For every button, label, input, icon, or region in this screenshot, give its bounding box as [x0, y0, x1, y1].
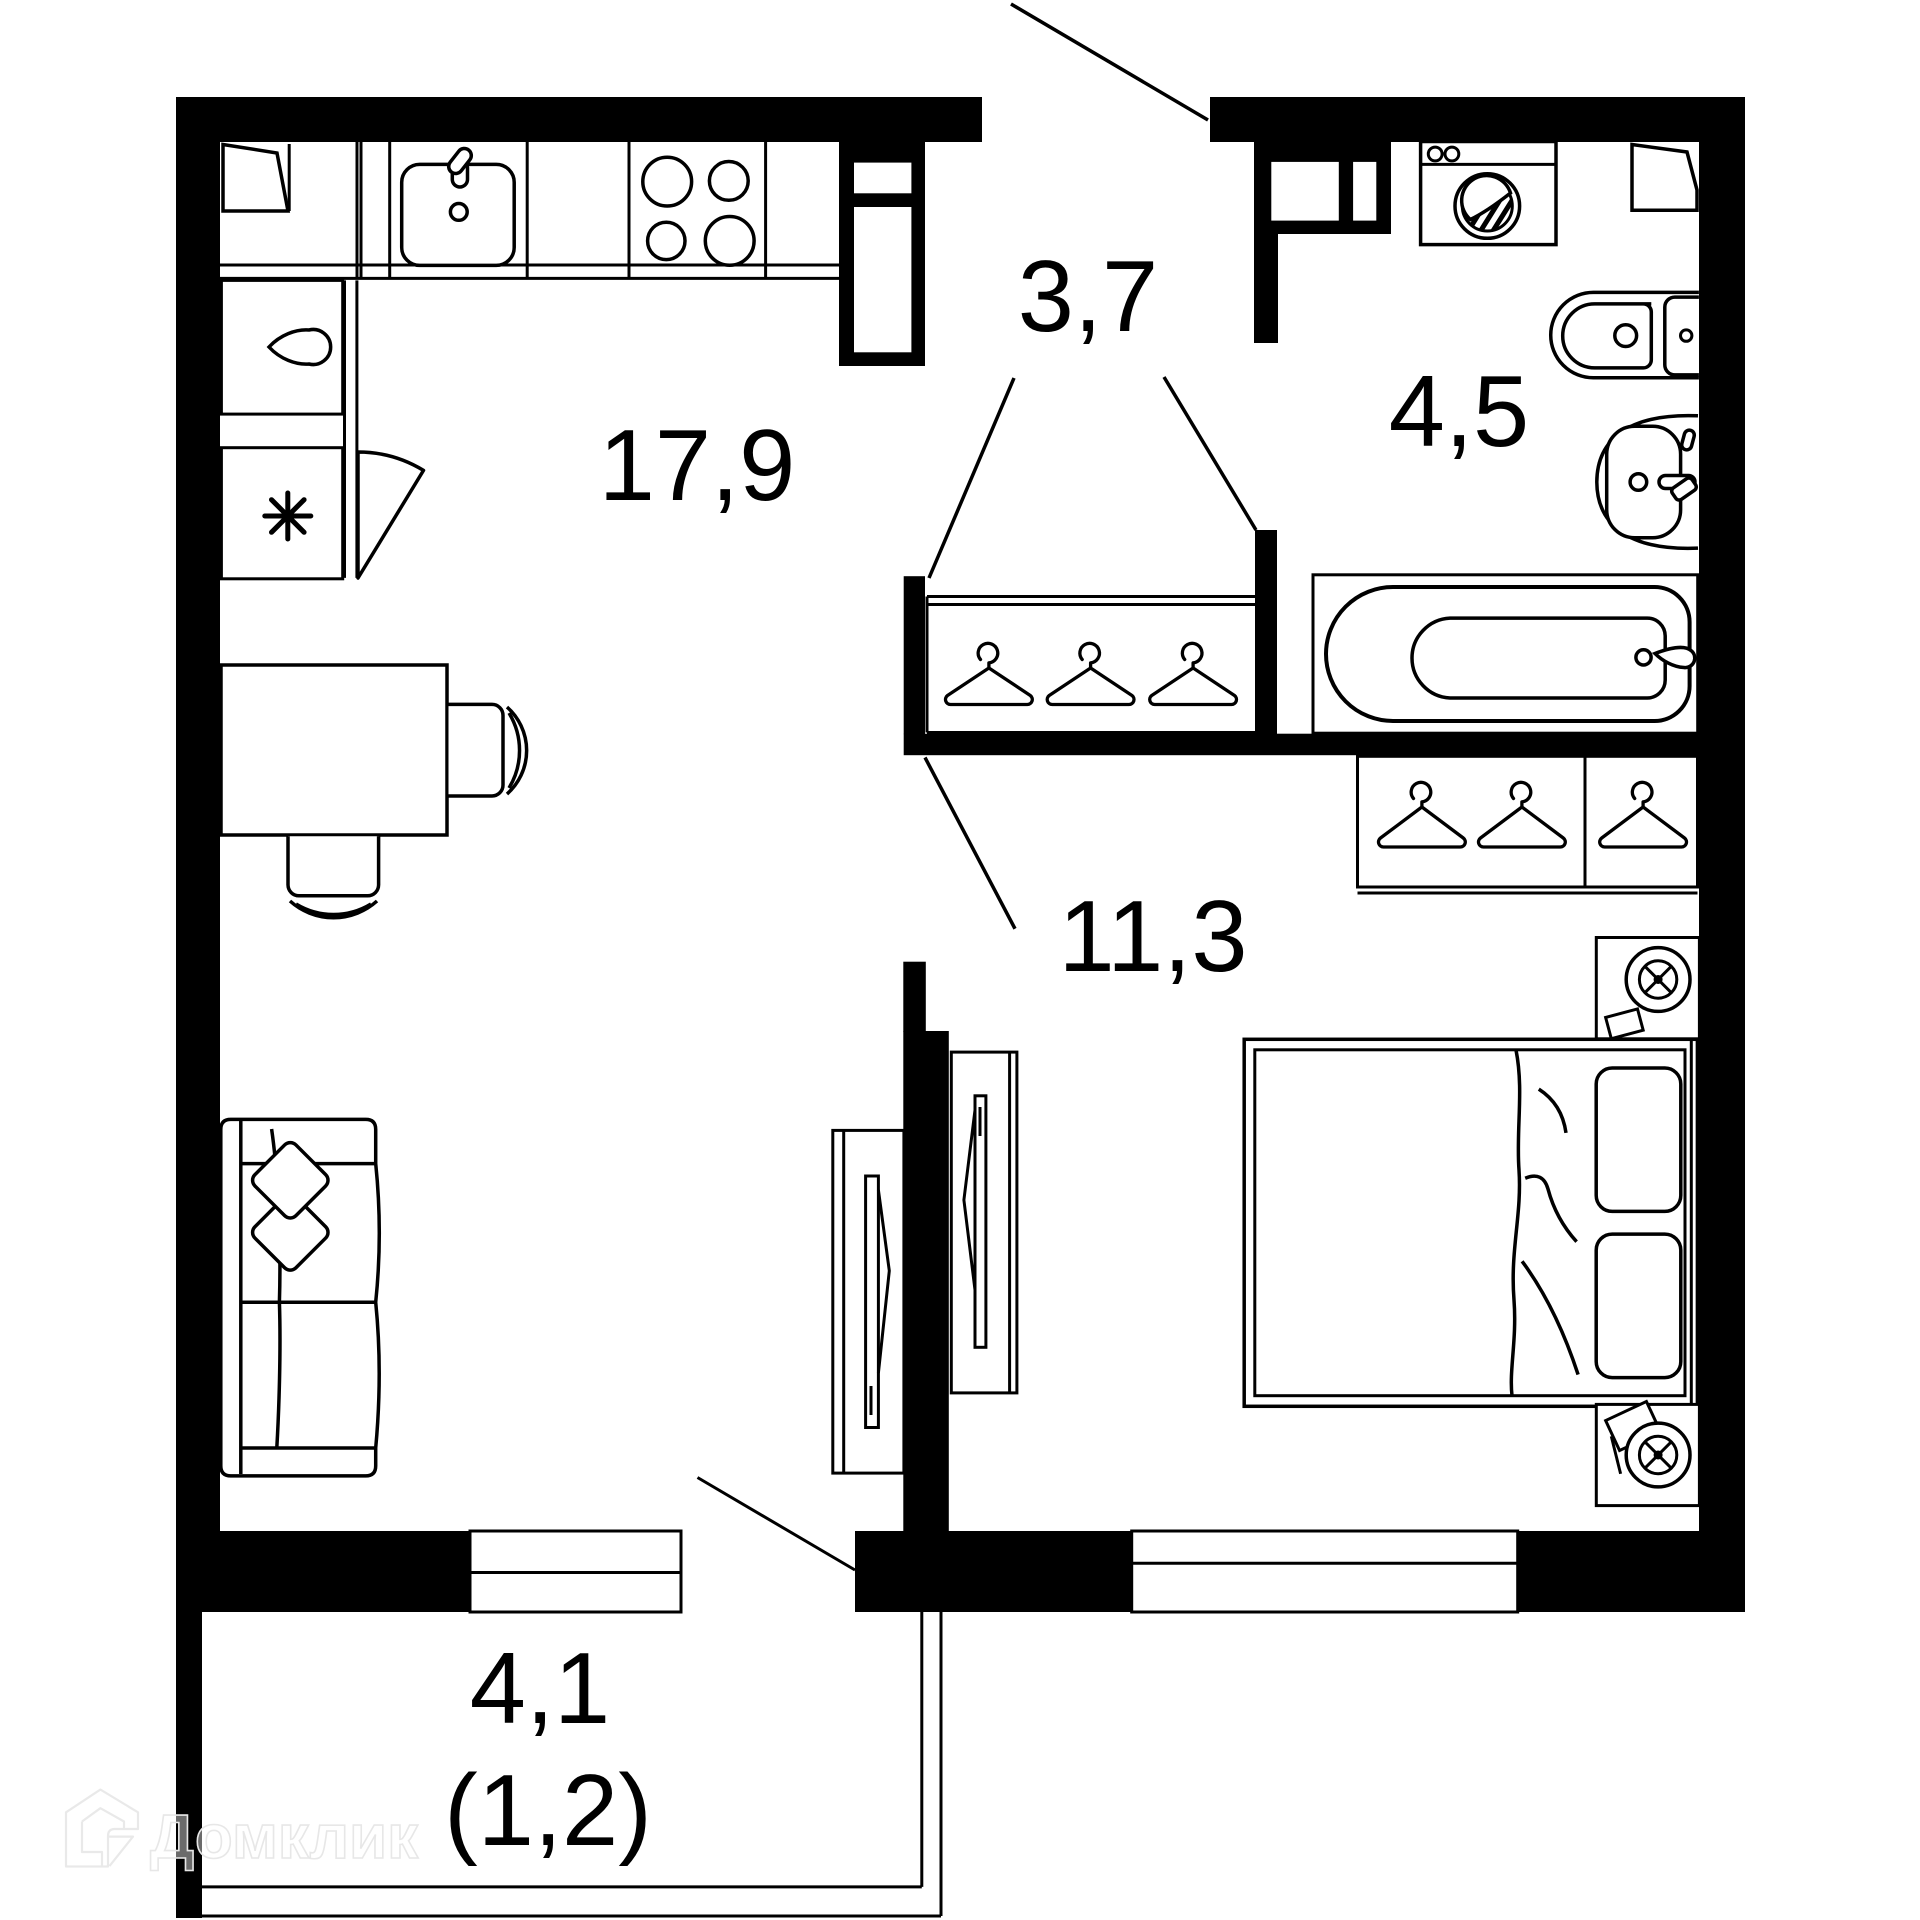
svg-text:3,7: 3,7 — [1018, 241, 1158, 353]
svg-text:4,5: 4,5 — [1389, 356, 1529, 468]
svg-text:17,9: 17,9 — [599, 410, 796, 522]
svg-text:4,1: 4,1 — [470, 1633, 610, 1745]
svg-text:(1,2): (1,2) — [444, 1755, 652, 1867]
svg-text:Домклик: Домклик — [150, 1803, 419, 1872]
svg-text:11,3: 11,3 — [1058, 881, 1247, 993]
